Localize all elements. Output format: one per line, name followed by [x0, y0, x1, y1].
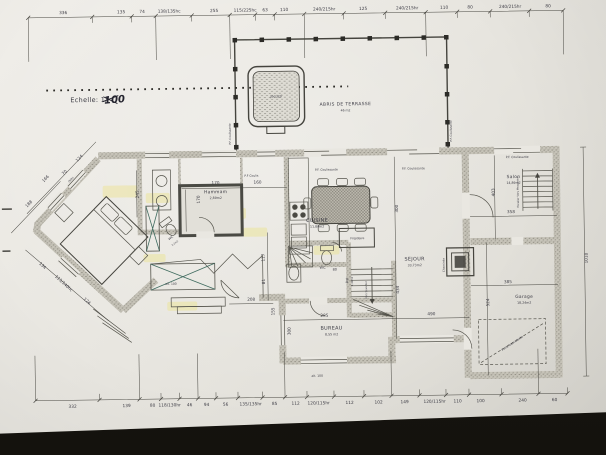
- scale-note: Echelle: 1/ 100: [70, 94, 125, 107]
- dim-chain-label: 110: [440, 5, 449, 11]
- room-area-label: 11,89m2: [310, 225, 324, 229]
- dimension-label: 285: [320, 313, 328, 318]
- dim-chain-label: 94: [204, 402, 210, 408]
- dim-chain-label: 56: [223, 402, 229, 408]
- room-label: SEJOUR: [404, 256, 425, 262]
- terrace-area-label: 46 m2: [341, 108, 351, 112]
- door-label: P.F. Coulissante: [315, 168, 338, 172]
- dimension-label: 124: [75, 153, 84, 162]
- dimension-lines: [8, 10, 589, 401]
- kitchen-fixtures: [288, 158, 309, 254]
- door-label: P.F Coulis: [244, 174, 259, 178]
- generated-labels: 33613574138/135hc255115/225hc63110240/21…: [21, 3, 590, 411]
- dimension-label: 117: [261, 253, 266, 261]
- dim-chain-label: 139: [123, 403, 132, 409]
- altitude-note: alt. 100: [311, 374, 323, 378]
- dimension-tick: [35, 356, 36, 401]
- room-label: Dgt: [345, 277, 349, 283]
- dimension-tick: [28, 18, 29, 62]
- scale-printed: Echelle: 1/: [70, 96, 108, 105]
- dimension-tick: [538, 349, 539, 394]
- dimension-label: 160: [254, 180, 262, 185]
- dimension-label: 358: [507, 209, 515, 214]
- dim-chain-label: 255: [210, 8, 219, 14]
- garage-door-label: Porte basculante: [501, 334, 524, 351]
- terrace-label: ABRIS DE TERRASSE: [320, 101, 372, 108]
- room-label: Garage: [515, 294, 533, 300]
- dim-chain-label: 102: [374, 400, 383, 406]
- jacuzzi-label: Jacuzzi: [270, 94, 283, 98]
- dim-chain-label: 135/135hr: [239, 401, 262, 407]
- dim-chain-label: 135: [117, 9, 126, 15]
- dim-chain-label: 80: [545, 3, 551, 9]
- dim-chain-label: 115/225hc: [234, 7, 258, 13]
- fireplace-label: Cheminée: [442, 258, 446, 272]
- altitude-note: alt. 100: [165, 282, 177, 286]
- dimension-label: 170: [212, 180, 220, 185]
- stairs-label: Vers Sous Sol: [364, 281, 368, 299]
- dimension-tick: [563, 10, 564, 54]
- dim-chain-label: 240: [518, 397, 527, 403]
- dimension-label: 70: [61, 168, 69, 176]
- dimension-label: 113/140hc: [54, 274, 74, 293]
- door-label: P.F. Coulissante: [449, 120, 453, 142]
- dimension-tick: [139, 354, 140, 399]
- dimension-label: 81: [261, 279, 266, 285]
- door-label: P.F. Coulissante: [506, 155, 529, 159]
- dimension-label: 490: [427, 311, 435, 316]
- dimension-label: 245: [135, 190, 140, 198]
- dim-chain-label: 80: [467, 4, 473, 10]
- dimension-label: 170: [196, 195, 201, 203]
- fridge-label: Frigidaire: [350, 236, 364, 240]
- dim-chain-label: 112: [345, 400, 354, 406]
- dim-chain-label: 80: [150, 403, 156, 409]
- bathroom-sinks: [152, 170, 171, 210]
- dim-chain-label: 149: [400, 399, 409, 405]
- dimension-label: 166: [41, 174, 50, 183]
- dim-chain-label: 110: [280, 7, 289, 13]
- room-area-label: 18,24m2: [517, 301, 531, 305]
- dim-chain-label: 125: [359, 6, 368, 12]
- dim-chain-label: 336: [59, 10, 68, 16]
- floorplan-drawing: Echelle: 1/ 100 33613574138/135hc255115/…: [0, 0, 606, 455]
- room-label: CUISINE: [306, 218, 328, 224]
- dim-chain-label: 120/115hr: [307, 400, 330, 406]
- dim-chain-label: 60: [552, 397, 558, 403]
- dim-chain-label: 110: [453, 398, 462, 404]
- room-area-label: 8,55 m2: [325, 332, 338, 336]
- room-area-label: 33,73m2: [408, 263, 422, 267]
- dimension-label: 134: [38, 261, 48, 270]
- dim-chain-label: 120/115hr: [423, 399, 446, 405]
- room-label: BUREAU: [320, 325, 342, 331]
- room-area-label: 1,40m2: [351, 276, 354, 286]
- dim-chain-label: 240/215hr: [499, 4, 522, 10]
- dimension-label: 155: [270, 307, 275, 315]
- dimension-label: 300: [394, 204, 399, 212]
- stairs-label: Escalier Vers Mezzanine: [515, 176, 519, 208]
- jacuzzi: [248, 66, 305, 134]
- room-area-label: 1,2m2: [171, 240, 179, 247]
- walls: [35, 146, 562, 384]
- dimension-tick: [197, 353, 198, 398]
- dim-chain-label: 85: [272, 401, 278, 407]
- room-label: WC: [320, 266, 327, 270]
- door-label: P.F. Coulissante: [402, 166, 425, 170]
- dimension-label: 403: [491, 188, 496, 196]
- dimension-tick: [230, 15, 231, 59]
- dim-chain-label: 63: [262, 7, 268, 13]
- dim-chain-label: 112: [291, 401, 300, 407]
- dim-chain-label: 332: [69, 404, 78, 410]
- dim-chain-label: 240/215hr: [313, 6, 336, 12]
- dimension-label: 1010: [584, 252, 589, 263]
- dim-chain-label: 240/215hr: [396, 5, 419, 11]
- dim-chain-label: 46: [187, 402, 193, 408]
- door-label: P.F. Coulissante: [228, 123, 232, 145]
- stairs-mezzanine: [522, 169, 553, 211]
- dimension-label: 208: [247, 297, 255, 302]
- room-area-label: 2,89m2: [210, 196, 222, 200]
- dim-chain-label: 118/130hr: [158, 402, 181, 408]
- dimension-label: 124: [83, 296, 93, 305]
- dimension-label: 385: [504, 279, 512, 284]
- dim-chain-label: 100: [476, 398, 485, 404]
- dimension-tick: [304, 14, 305, 58]
- edge-marks: [2, 209, 13, 251]
- room-label: Hammam: [204, 189, 227, 195]
- property-dotted-line: [46, 86, 348, 90]
- dimension-label: 300: [287, 327, 292, 335]
- dimension-tick: [156, 16, 157, 60]
- photo-background: Echelle: 1/ 100 33613574138/135hc255115/…: [0, 0, 606, 455]
- dimension-label: 80: [333, 268, 337, 272]
- dim-chain-label: 74: [139, 9, 145, 15]
- stairs-basement: [351, 267, 394, 318]
- dimension-label: 524: [485, 298, 490, 306]
- dim-chain-label: 138/135hc: [158, 8, 182, 14]
- dimension-label: 434: [395, 285, 400, 293]
- dimension-tick: [426, 12, 427, 56]
- dimension-label: 188: [24, 199, 33, 208]
